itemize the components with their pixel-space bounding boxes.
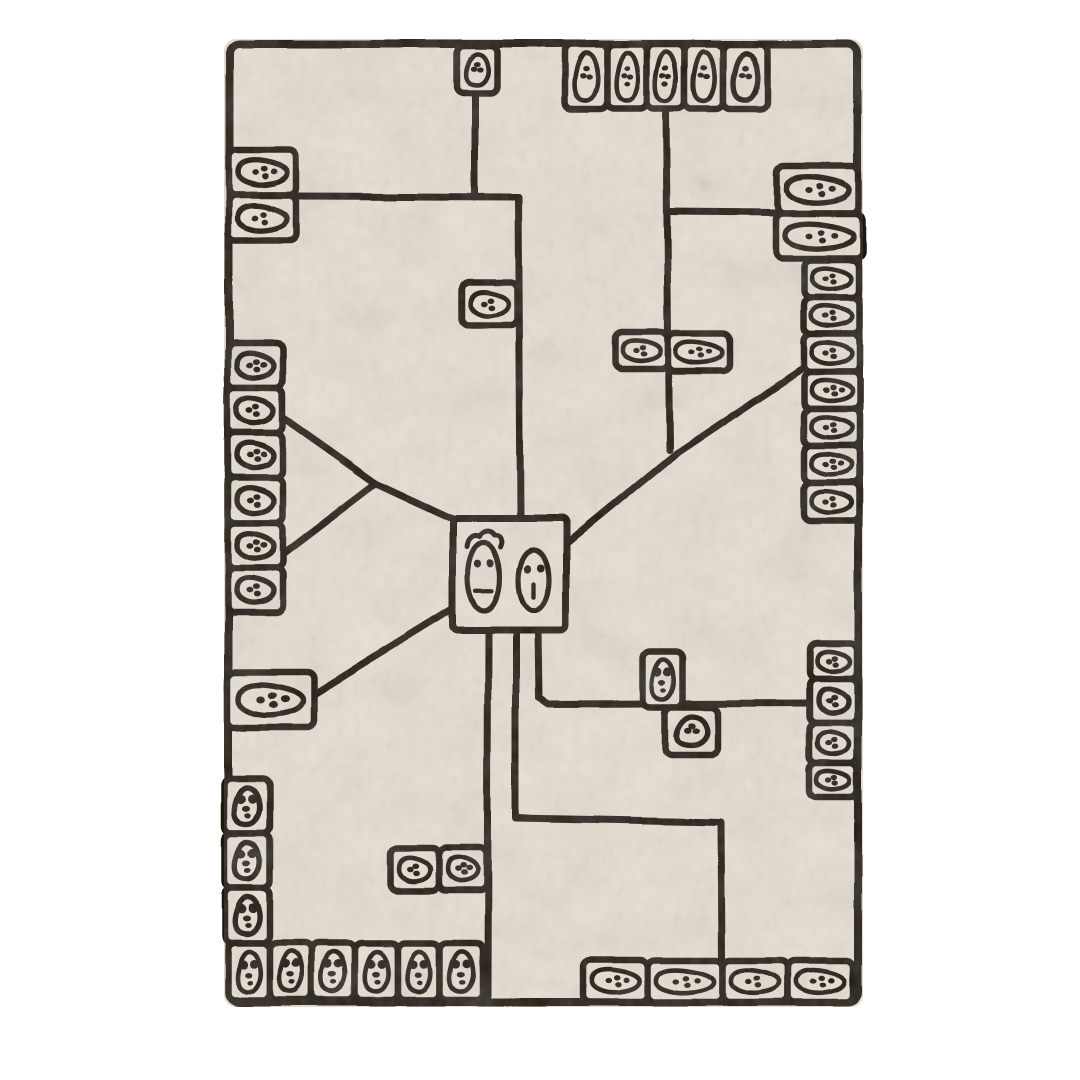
rug-artwork [0, 0, 1080, 1080]
product-photo [0, 0, 1080, 1080]
fabric-texture [224, 39, 863, 1007]
